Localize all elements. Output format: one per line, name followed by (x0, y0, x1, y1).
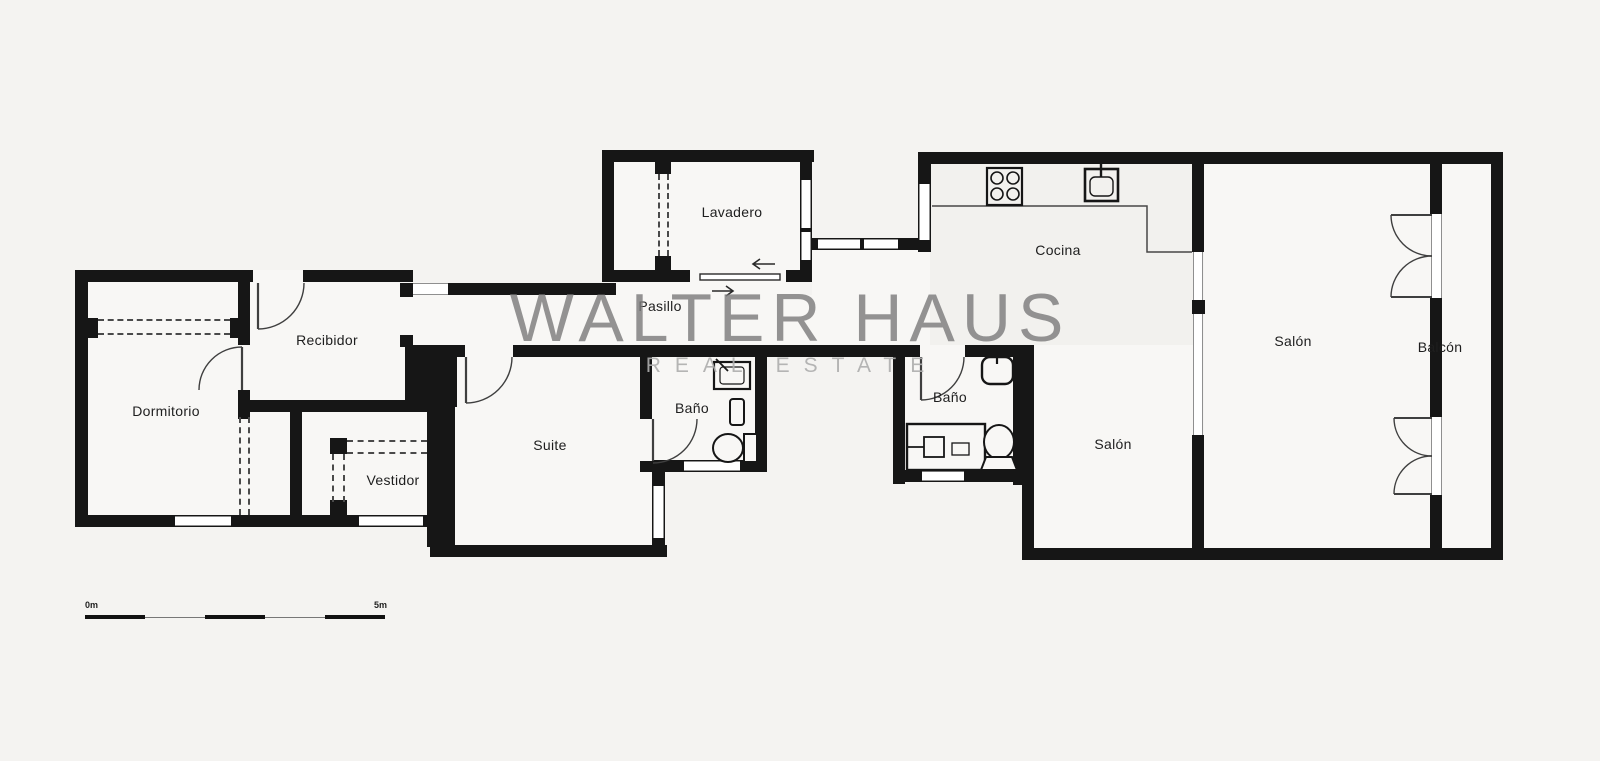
window (864, 239, 898, 249)
wall-stub (655, 256, 671, 270)
laundry-closet-dashed (658, 174, 669, 256)
wall-stub (330, 500, 347, 515)
scale-end-label: 5m (374, 600, 387, 610)
wall (75, 270, 88, 527)
wall (918, 152, 1503, 164)
floor-balcon (1442, 164, 1492, 549)
watermark-subtitle: REAL ESTATE (646, 354, 938, 378)
wall (455, 345, 465, 357)
scale-segment (265, 617, 325, 618)
room-label-suite: Suite (533, 437, 566, 453)
wall-stub (655, 162, 671, 174)
room-label-salon-main: Salón (1274, 333, 1311, 349)
door-opening (640, 419, 652, 461)
room-label-bano-suite: Baño (675, 400, 709, 416)
wall (1022, 482, 1034, 560)
window-glass-partition (1193, 252, 1203, 435)
balcony-door-sill (1431, 417, 1442, 495)
wall-stub (230, 318, 250, 338)
window (359, 516, 423, 526)
window (801, 180, 811, 228)
window (175, 516, 231, 526)
scale-bar-line (85, 615, 385, 620)
scale-start-label: 0m (85, 600, 98, 610)
room-label-lavadero: Lavadero (702, 204, 763, 220)
wall (1013, 345, 1034, 485)
wall (1192, 160, 1204, 252)
window (818, 239, 860, 249)
window (413, 283, 448, 295)
wall (1192, 435, 1204, 560)
wall-shaft (405, 345, 457, 407)
floor-salon-main (1204, 164, 1431, 549)
door-opening (465, 345, 513, 357)
scale-bar: 0m 5m (85, 600, 387, 624)
window (919, 184, 930, 240)
wall (75, 270, 255, 282)
balcony-door-sill (1431, 214, 1442, 298)
room-label-cocina: Cocina (1035, 242, 1080, 258)
wall (1430, 298, 1442, 417)
window (922, 471, 964, 481)
wall (1491, 152, 1503, 560)
wall-stub (330, 438, 347, 454)
floorplan-canvas: Dormitorio Recibidor Vestidor Suite Baño… (0, 0, 1600, 761)
wall (427, 407, 455, 547)
wall (430, 545, 667, 557)
watermark-title: WALTER HAUS (510, 279, 1071, 357)
door-opening (253, 270, 303, 282)
wall (400, 283, 413, 297)
scale-segment (205, 615, 265, 619)
room-label-recibidor: Recibidor (296, 332, 358, 348)
window (653, 486, 664, 538)
window (684, 461, 740, 471)
wardrobe-dashed (332, 454, 345, 502)
wall (238, 400, 430, 412)
wall-stub (87, 318, 98, 338)
room-label-dormitorio: Dormitorio (132, 403, 200, 419)
scale-segment (145, 617, 205, 618)
room-label-vestidor: Vestidor (367, 472, 420, 488)
scale-segment (85, 615, 145, 619)
room-label-bano-hall: Baño (933, 389, 967, 405)
scale-segment (325, 615, 385, 619)
wall (1430, 495, 1442, 560)
wall-stub (1192, 300, 1205, 314)
wardrobe-dashed (98, 319, 230, 335)
wall (602, 150, 814, 162)
wall (1430, 164, 1442, 214)
wardrobe-dashed (239, 417, 250, 515)
room-label-salon-open: Salón (1094, 436, 1131, 452)
wall (303, 270, 413, 282)
wall (290, 400, 302, 515)
wardrobe-dashed (347, 440, 427, 454)
wall (602, 150, 614, 282)
window (801, 232, 811, 260)
room-label-balcon: Balcón (1418, 339, 1463, 355)
